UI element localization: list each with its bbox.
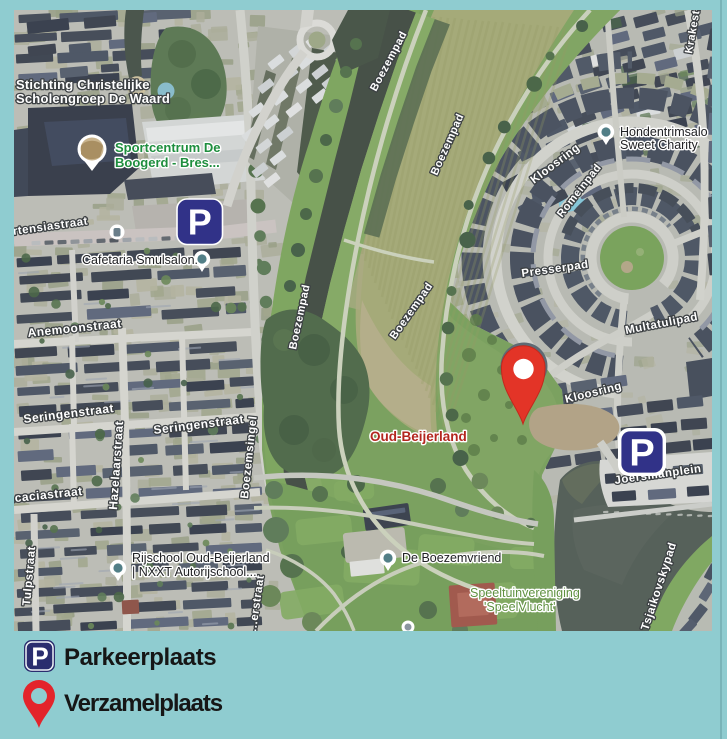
svg-text:Stichting Christelijke: Stichting Christelijke [16,77,150,92]
svg-text:Sportcentrum De: Sportcentrum De [115,140,220,155]
svg-text:Boogerd - Bres...: Boogerd - Bres... [115,155,220,170]
svg-text:Speeltuinvereniging: Speeltuinvereniging [470,586,580,600]
svg-text:'SpeelVlucht': 'SpeelVlucht' [484,600,555,614]
svg-text:P: P [629,433,654,475]
svg-text:Scholengroep De Waard: Scholengroep De Waard [16,91,170,106]
svg-text:Sweet Charity: Sweet Charity [620,138,699,152]
svg-text:Cafetaria Smulsalon.: Cafetaria Smulsalon. [82,253,198,267]
svg-text:P: P [31,641,48,671]
svg-text:Rijschool Oud-Beijerland: Rijschool Oud-Beijerland [132,551,270,565]
svg-text:De Boezemvriend: De Boezemvriend [402,551,501,565]
svg-text:P: P [188,202,212,243]
svg-text:Oud-Beijerland: Oud-Beijerland [370,429,467,444]
svg-text:Hondentrimsalo: Hondentrimsalo [620,125,708,139]
svg-text:| NXXT Autorijschool...: | NXXT Autorijschool... [132,565,257,579]
